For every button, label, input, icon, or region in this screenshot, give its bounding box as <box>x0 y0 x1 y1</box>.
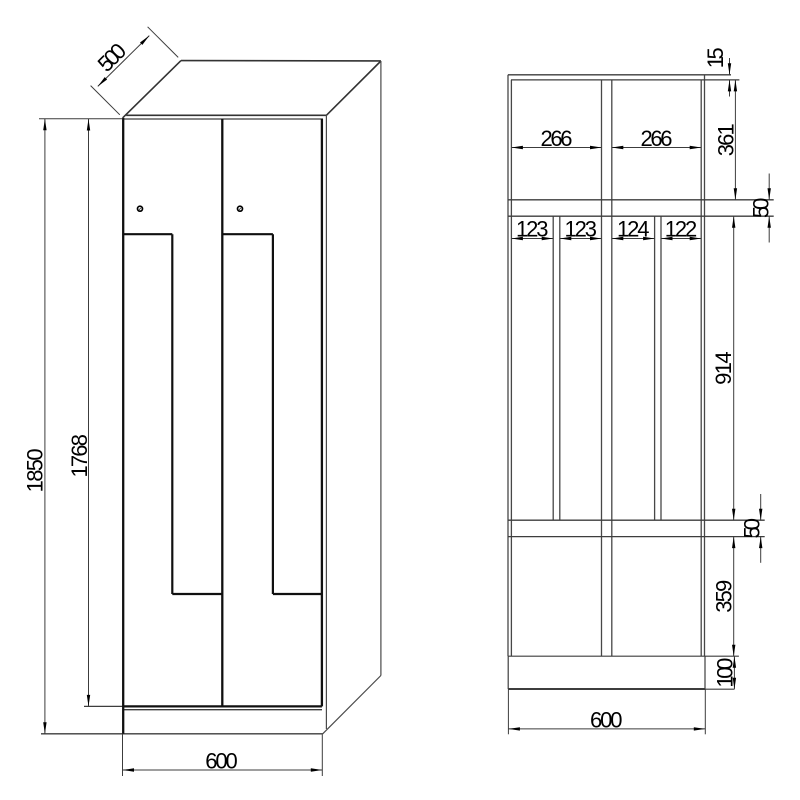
svg-text:266: 266 <box>541 126 573 151</box>
svg-text:100: 100 <box>712 658 737 688</box>
svg-text:914: 914 <box>711 351 736 385</box>
svg-text:1768: 1768 <box>67 434 92 478</box>
svg-text:124: 124 <box>617 217 650 242</box>
svg-text:50: 50 <box>748 198 773 219</box>
svg-text:359: 359 <box>712 580 737 613</box>
svg-text:361: 361 <box>714 123 739 156</box>
svg-text:15: 15 <box>703 47 728 68</box>
svg-text:1850: 1850 <box>23 448 48 492</box>
svg-text:122: 122 <box>665 217 698 242</box>
svg-text:266: 266 <box>641 126 673 151</box>
svg-text:123: 123 <box>516 217 549 242</box>
svg-text:600: 600 <box>590 708 623 733</box>
svg-text:123: 123 <box>564 217 597 242</box>
svg-text:50: 50 <box>739 518 764 539</box>
svg-text:600: 600 <box>205 749 238 774</box>
